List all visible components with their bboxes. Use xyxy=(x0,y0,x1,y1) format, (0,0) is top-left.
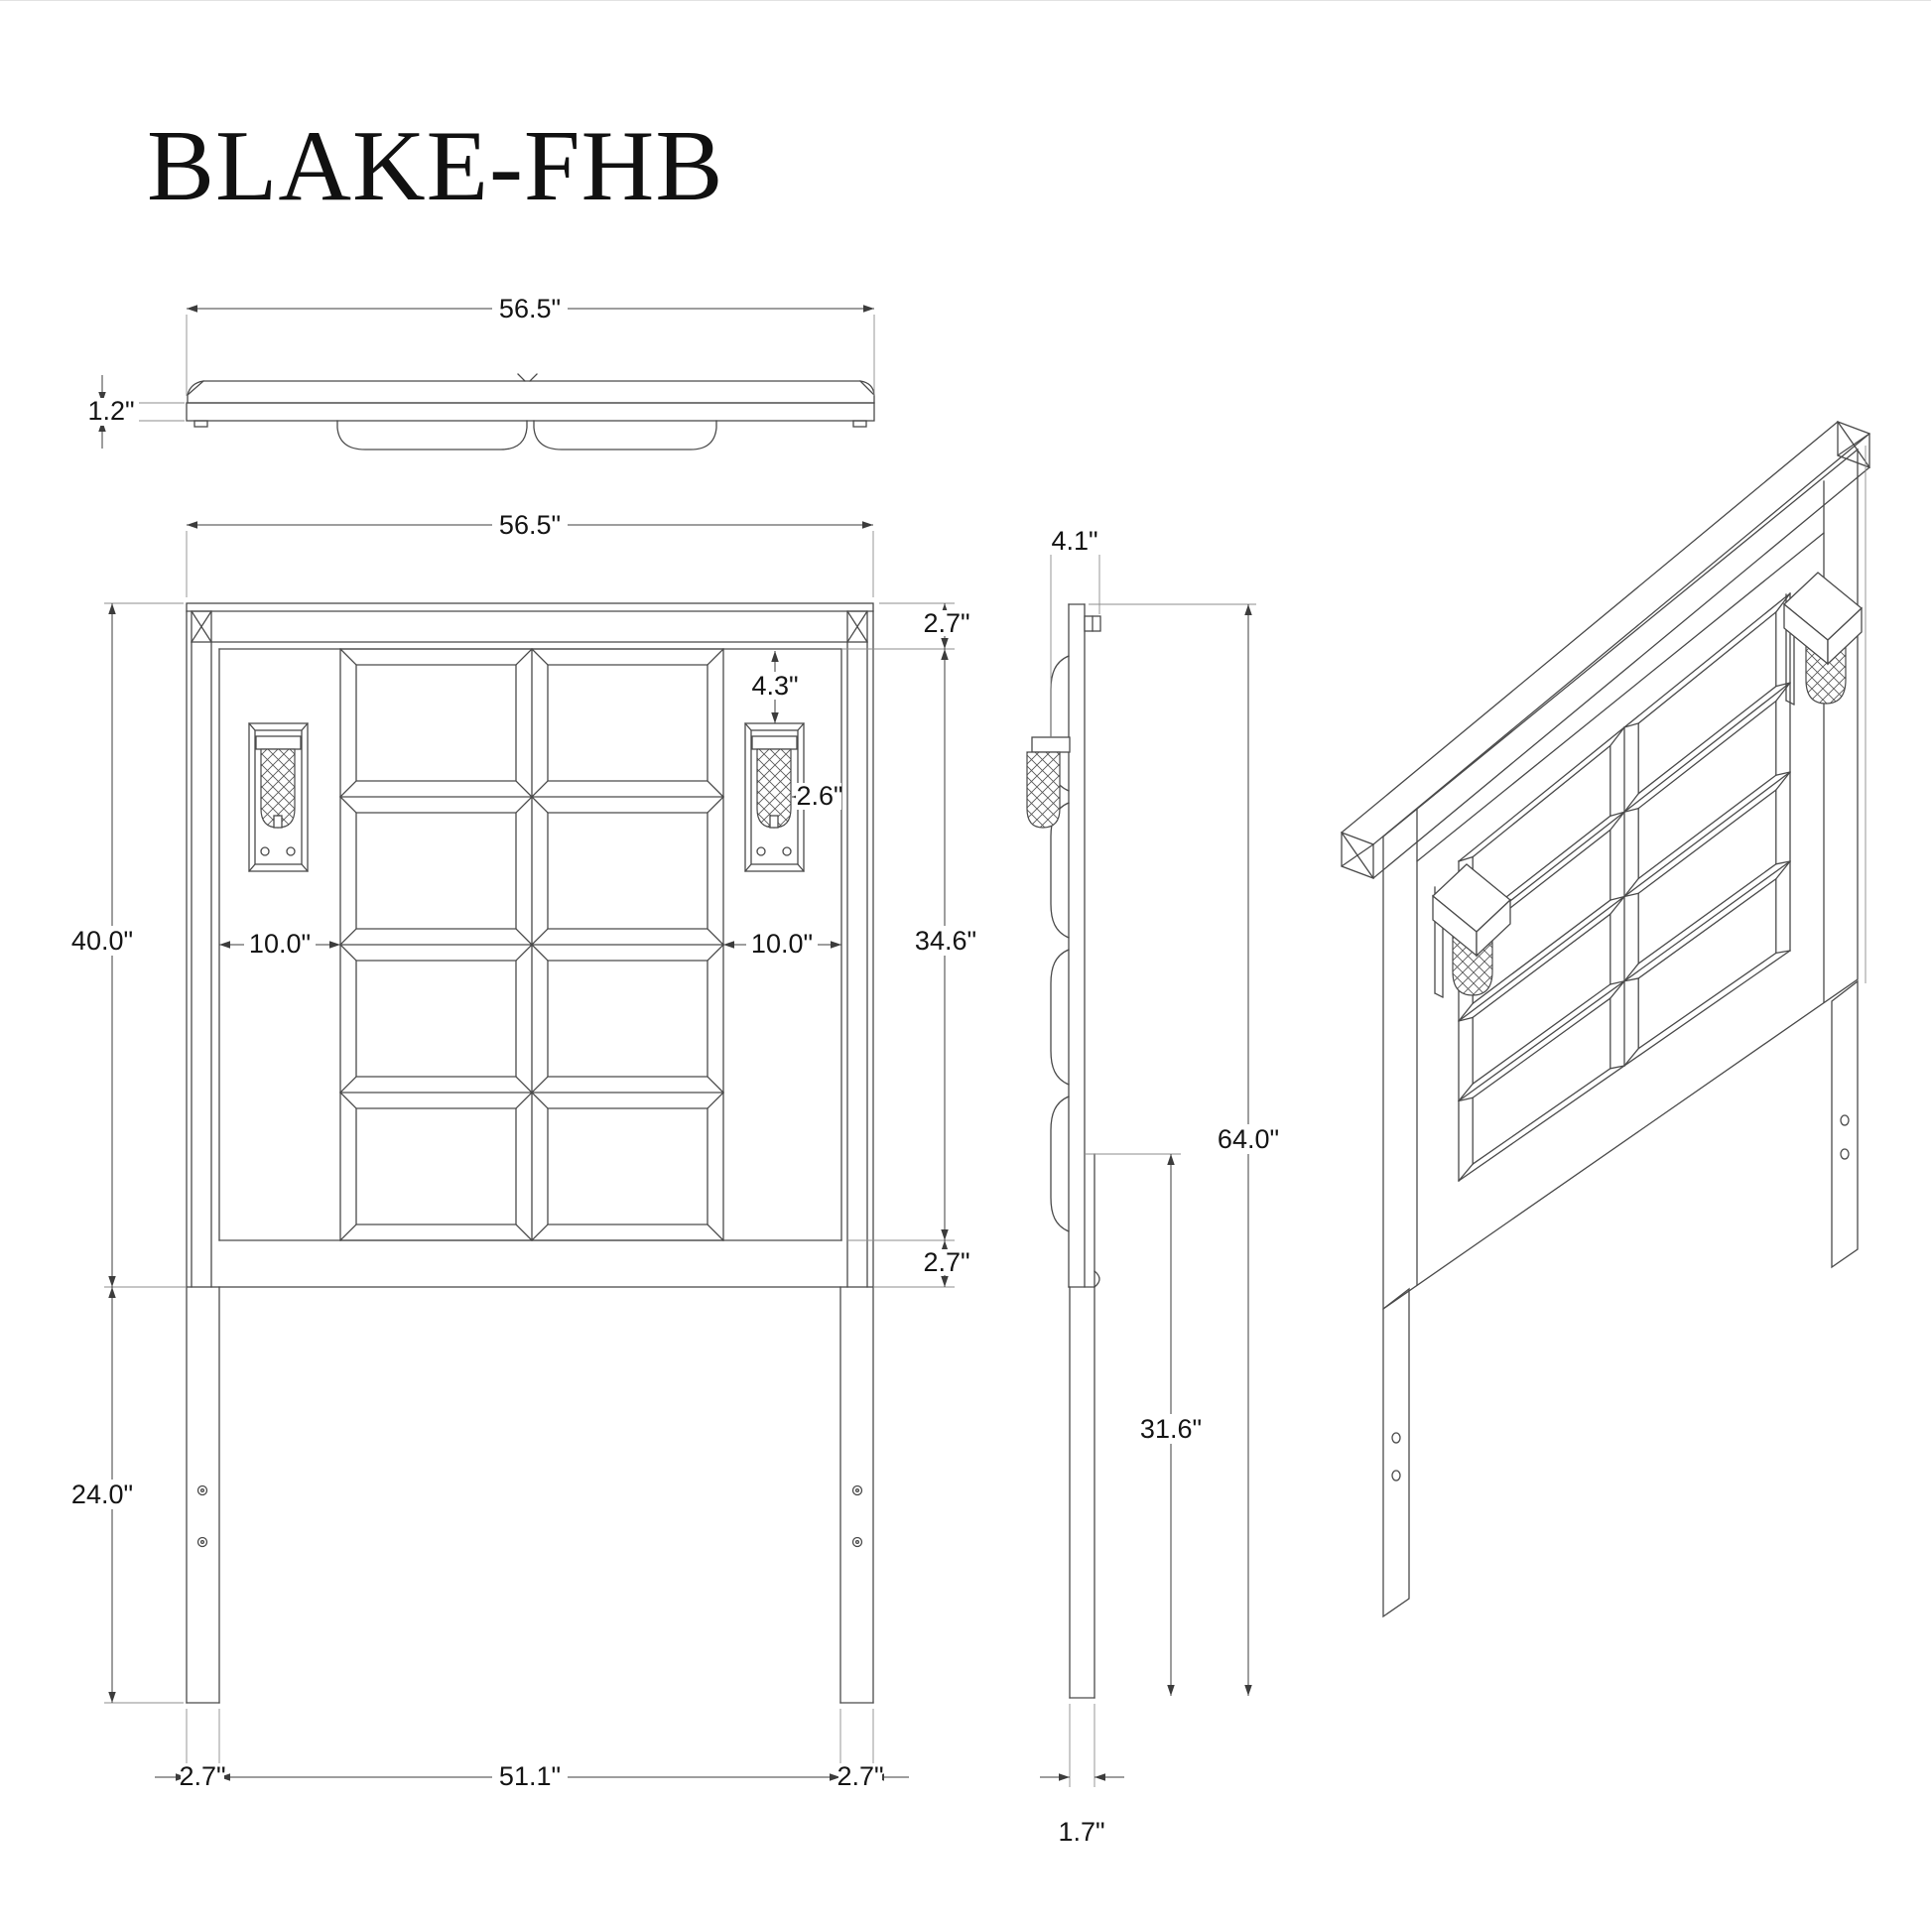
dim-inset-left: 10.0" xyxy=(249,929,311,959)
dim-inset-right: 10.0" xyxy=(751,929,813,959)
spec-sheet: BLAKE-FHB 56.5" 1.2" xyxy=(0,0,1931,1932)
dim-sconce-width: 2.6" xyxy=(796,781,842,811)
page-title: BLAKE-FHB xyxy=(147,110,723,222)
dim-leg-height: 24.0" xyxy=(71,1480,133,1509)
dim-panel-drop: 4.3" xyxy=(751,671,798,701)
dim-mount-height: 31.6" xyxy=(1140,1414,1202,1444)
iso-panel-grid xyxy=(1459,593,1790,1181)
dim-total-height: 64.0" xyxy=(1218,1124,1279,1154)
dim-top-thickness: 1.2" xyxy=(87,396,134,426)
dim-panel-height: 34.6" xyxy=(915,926,976,956)
dim-front-width: 56.5" xyxy=(499,510,561,540)
dim-top-width: 56.5" xyxy=(499,294,561,323)
dim-inner-width: 51.1" xyxy=(499,1761,561,1791)
dim-depth: 4.1" xyxy=(1051,526,1097,556)
front-view: 56.5" 40.0" 24.0" 2.7" 34.6" 2.7" 4.3" xyxy=(64,510,984,1791)
panel-grid xyxy=(340,649,723,1240)
top-view: 56.5" 1.2" xyxy=(83,294,874,450)
dim-leg-thickness: 1.7" xyxy=(1058,1817,1104,1847)
dim-board-height: 40.0" xyxy=(71,926,133,956)
dim-leg-width-left: 2.7" xyxy=(179,1761,225,1791)
isometric-view xyxy=(1342,422,1869,1616)
iso-sconce-right xyxy=(1784,573,1862,705)
sconce-left xyxy=(249,723,308,871)
side-view: 4.1" 64.0" 31.6" 1.7" xyxy=(1027,526,1287,1847)
sconce-side xyxy=(1027,737,1070,828)
dim-bottom-rail: 2.7" xyxy=(923,1247,969,1277)
dim-leg-width-right: 2.7" xyxy=(837,1761,883,1791)
iso-sconce-left xyxy=(1433,864,1510,997)
iso-leg-holes xyxy=(1392,1115,1849,1481)
dim-top-rail: 2.7" xyxy=(923,608,969,638)
leg-screw-holes xyxy=(198,1486,862,1547)
technical-drawing: BLAKE-FHB 56.5" 1.2" xyxy=(0,1,1931,1932)
